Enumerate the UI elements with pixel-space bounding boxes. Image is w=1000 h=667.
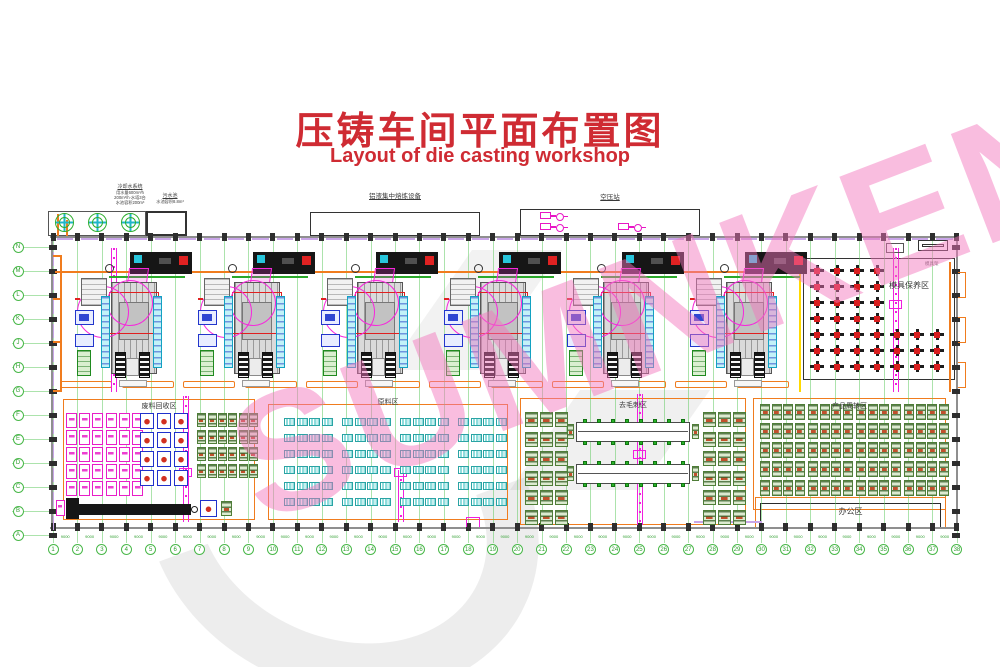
column	[124, 233, 129, 241]
green-bin	[228, 464, 237, 478]
fence-bracket	[958, 362, 966, 388]
axis-dimension: 9000	[175, 534, 199, 540]
pallet-bin	[760, 461, 770, 477]
window-segment	[375, 238, 391, 240]
pallet-bin	[879, 461, 889, 477]
column	[49, 533, 57, 538]
axis-dimension: 9000	[273, 534, 297, 540]
cyan-rack	[496, 498, 507, 506]
column	[881, 523, 886, 531]
cyan-rack	[322, 498, 333, 506]
window-segment	[53, 348, 55, 362]
green-bin	[540, 432, 553, 447]
green-bin	[718, 432, 731, 447]
pallet-bin	[927, 480, 937, 496]
axis-left-circle: N	[13, 242, 24, 253]
axis-left-circle: A	[13, 530, 24, 541]
pallet-bin	[831, 461, 841, 477]
green-bin	[555, 490, 568, 505]
workstation-dot	[597, 483, 601, 487]
axis-dimension: 9000	[444, 534, 468, 540]
axis-dimension: 9000	[200, 534, 224, 540]
pallet-bin	[831, 442, 841, 458]
mold-stand	[910, 329, 924, 340]
mold-stand	[810, 345, 824, 356]
blue-bin	[140, 413, 154, 429]
green-bin	[525, 471, 538, 486]
axis-bottom-circle: 12	[316, 544, 327, 555]
axis-dimension: 9000	[835, 534, 859, 540]
machine-robot-reach-circle	[476, 280, 522, 326]
pallet-bin	[795, 480, 805, 496]
cyan-rack	[496, 418, 507, 426]
magenta-bin	[79, 481, 90, 496]
cyan-rack	[471, 466, 482, 474]
window-segment	[350, 238, 366, 240]
deburr-table	[576, 422, 690, 442]
axis-bottom-circle: 13	[341, 544, 352, 555]
column	[295, 233, 300, 241]
cyan-rack	[380, 498, 391, 506]
cyan-rack	[400, 498, 411, 506]
column	[490, 523, 495, 531]
machine-conveyor	[522, 296, 531, 368]
workstation-dot	[653, 419, 657, 423]
green-bin	[208, 447, 217, 461]
pallet-bin	[879, 423, 889, 439]
axis-bottom-circle: 3	[96, 544, 107, 555]
workstation-dot	[611, 483, 615, 487]
green-bin	[249, 464, 258, 478]
cooling-tower-inner	[59, 217, 70, 228]
magenta-bin	[66, 481, 77, 496]
magenta-bin	[66, 447, 77, 462]
cyan-rack	[496, 466, 507, 474]
workstation-dot	[639, 483, 643, 487]
mold-stand	[830, 313, 844, 324]
axis-bottom-circle: 10	[267, 544, 278, 555]
window-segment	[53, 300, 55, 314]
axis-dimension: 9000	[810, 534, 834, 540]
blue-bin	[174, 470, 188, 486]
fence-segment	[675, 381, 727, 388]
cyan-rack	[483, 466, 494, 474]
workstation-dot	[611, 461, 615, 465]
fence-stub	[53, 255, 61, 257]
pallet-bin	[868, 442, 878, 458]
mold-stand	[850, 345, 864, 356]
window-segment	[423, 238, 439, 240]
cyan-rack	[425, 450, 436, 458]
cyan-rack	[367, 466, 378, 474]
pallet-bin	[927, 461, 937, 477]
window-segment	[448, 238, 464, 240]
green-bin	[718, 412, 731, 427]
column	[49, 317, 57, 322]
truck-cab	[66, 498, 79, 519]
magenta-bin	[119, 447, 130, 462]
pallet-bin	[760, 423, 770, 439]
axis-dimension: 9000	[371, 534, 395, 540]
window-segment	[619, 238, 635, 240]
cyan-rack	[483, 418, 494, 426]
window-segment	[53, 468, 55, 482]
workstation-dot	[583, 483, 587, 487]
pallet-bin	[856, 423, 866, 439]
axis-dimension: 9000	[664, 534, 688, 540]
green-bin	[718, 510, 731, 525]
pallet-bin	[795, 461, 805, 477]
column	[51, 233, 56, 241]
column	[588, 233, 593, 241]
cyan-rack	[400, 450, 411, 458]
pallet-bin	[868, 461, 878, 477]
axis-dimension: 9000	[248, 534, 272, 540]
cyan-rack	[355, 450, 366, 458]
magenta-bin	[92, 464, 103, 479]
green-bin	[249, 447, 258, 461]
axis-dimension: 9000	[151, 534, 175, 540]
pallet-bin	[868, 480, 878, 496]
cyan-rack	[413, 434, 424, 442]
window-segment	[399, 238, 415, 240]
machine-ladder-rack	[385, 352, 396, 378]
mold-stand	[870, 361, 884, 372]
machine-furnace-chip	[671, 256, 680, 265]
pallet-bin	[916, 480, 926, 496]
green-bin	[218, 413, 227, 427]
machine-cooler-unit	[444, 334, 463, 347]
machine-conveyor	[768, 296, 777, 368]
machine-conveyor	[153, 296, 162, 368]
axis-bottom-circle: 7	[194, 544, 205, 555]
machine-cooler-core	[571, 314, 581, 321]
fence-bracket	[958, 317, 966, 343]
blue-bin	[200, 500, 217, 517]
green-bin	[221, 501, 232, 516]
cyan-rack	[355, 498, 366, 506]
pallet-bin	[856, 480, 866, 496]
mold-area-label: 模具保养区	[889, 280, 929, 291]
green-bin	[525, 510, 538, 525]
window-segment	[863, 238, 879, 240]
green-bin	[555, 451, 568, 466]
sewage-pool-line: 水池容积8.8m³	[147, 199, 193, 204]
machine-green-rack	[692, 350, 706, 376]
axis-bottom-circle: 33	[829, 544, 840, 555]
axis-dimension: 9000	[908, 534, 932, 540]
window-segment	[888, 238, 904, 240]
deburr-table-line	[578, 431, 688, 432]
workstation-dot	[653, 461, 657, 465]
machine-conveyor	[470, 296, 479, 368]
mold-stand	[810, 313, 824, 324]
air-pump	[618, 223, 629, 230]
machine-furnace-chip	[626, 255, 634, 263]
magenta-bin	[56, 500, 65, 516]
workstation-dot	[611, 441, 615, 445]
window-segment	[252, 238, 268, 240]
window-segment	[497, 238, 513, 240]
pallet-bin	[843, 423, 853, 439]
machine-furnace-slit	[528, 258, 540, 264]
window-segment	[814, 238, 830, 240]
machine-vent-circle	[351, 264, 360, 273]
axis-bottom-circle: 16	[414, 544, 425, 555]
pallet-bin	[795, 442, 805, 458]
pallet-bin	[820, 480, 830, 496]
machine-ladder-rack	[238, 352, 249, 378]
machine-green-rack	[77, 350, 91, 376]
machine-furnace-chip	[548, 256, 557, 265]
pallet-bin	[939, 461, 949, 477]
blue-bin	[140, 451, 154, 467]
machine-tray	[365, 380, 393, 387]
column	[564, 233, 569, 241]
column	[368, 523, 373, 531]
workstation-dot	[667, 461, 671, 465]
axis-dimension: 9000	[468, 534, 492, 540]
machine-ladder-rack	[508, 352, 519, 378]
mold-stand	[890, 329, 904, 340]
green-bin	[239, 447, 248, 461]
pallet-bin	[843, 442, 853, 458]
magenta-bin	[106, 447, 117, 462]
fence-stub	[53, 341, 61, 343]
machine-green-rack	[200, 350, 214, 376]
axis-bottom-circle: 25	[634, 544, 645, 555]
green-bin	[718, 451, 731, 466]
axis-dimension: 9000	[419, 534, 443, 540]
green-bin	[703, 490, 716, 505]
column	[75, 523, 80, 531]
column	[197, 523, 202, 531]
machine-furnace-chip	[302, 256, 311, 265]
crane-hoist	[633, 450, 646, 459]
workstation-dot	[583, 419, 587, 423]
window-segment	[53, 372, 55, 386]
blue-bin	[140, 432, 154, 448]
column	[832, 523, 837, 531]
pallet-bin	[808, 442, 818, 458]
cyan-rack	[297, 418, 308, 426]
green-bin	[540, 510, 553, 525]
pallet-bin	[772, 480, 782, 496]
workstation-dot	[625, 419, 629, 423]
green-bin	[239, 430, 248, 444]
pallet-bin	[843, 480, 853, 496]
magenta-bin	[106, 481, 117, 496]
column	[417, 233, 422, 241]
mold-stand	[850, 265, 864, 276]
window-segment	[668, 238, 684, 240]
column	[417, 523, 422, 531]
cyan-rack	[380, 418, 391, 426]
cyan-rack	[425, 466, 436, 474]
cyan-rack	[342, 466, 353, 474]
machine-conveyor	[716, 296, 725, 368]
raw-area-label: 原料区	[268, 397, 508, 407]
cyan-rack	[309, 498, 320, 506]
magenta-bin	[119, 430, 130, 445]
machine-furnace-chip	[503, 255, 511, 263]
cyan-rack	[438, 418, 449, 426]
axis-bottom-circle: 24	[609, 544, 620, 555]
machine-furnace-chip	[794, 256, 803, 265]
axis-left-circle: L	[13, 290, 24, 301]
machine-furnace-chip	[749, 255, 757, 263]
scrap-area-label: 废料回收区	[63, 401, 255, 411]
green-bin	[239, 464, 248, 478]
pallet-bin	[808, 423, 818, 439]
pallet-bin	[927, 423, 937, 439]
green-bin	[525, 432, 538, 447]
deburr-area-label: 去毛刺区	[520, 400, 746, 410]
pallet-bin	[939, 442, 949, 458]
pallet-bin	[820, 423, 830, 439]
workstation-dot	[597, 419, 601, 423]
column	[515, 233, 520, 241]
cyan-rack	[342, 434, 353, 442]
column	[954, 233, 959, 241]
gridline-vertical	[688, 237, 689, 543]
green-bin	[540, 490, 553, 505]
pallet-bin	[820, 461, 830, 477]
window-segment	[472, 238, 488, 240]
column	[539, 233, 544, 241]
machine-robot-reach-circle	[722, 280, 768, 326]
workshop-layout-drawing: 压铸车间平面布置图 Layout of die casting workshop…	[0, 0, 1000, 667]
column	[832, 233, 837, 241]
axis-bottom-circle: 27	[683, 544, 694, 555]
axis-dimension: 9000	[322, 534, 346, 540]
pallet-bin	[783, 480, 793, 496]
pallet-bin	[939, 423, 949, 439]
air-pump-pipe	[564, 227, 568, 229]
air-pump	[540, 223, 551, 230]
column	[393, 233, 398, 241]
pallet-bin	[904, 480, 914, 496]
machine-robot-reach-circle	[107, 280, 153, 326]
axis-dimension: 9000	[395, 534, 419, 540]
machine-dim-mark	[567, 298, 572, 300]
cyan-rack	[400, 466, 411, 474]
pallet-bin	[891, 442, 901, 458]
column	[173, 523, 178, 531]
axis-left-circle: J	[13, 338, 24, 349]
column	[344, 233, 349, 241]
fence-segment	[552, 381, 604, 388]
axis-bottom-circle: 38	[951, 544, 962, 555]
mold-stand	[890, 345, 904, 356]
magenta-bin	[79, 464, 90, 479]
axis-bottom-circle: 35	[878, 544, 889, 555]
pallet-bin	[904, 461, 914, 477]
green-bin	[733, 412, 746, 427]
fence-stub	[53, 390, 61, 392]
magenta-bin	[119, 481, 130, 496]
mold-stand	[930, 361, 944, 372]
machine-ladder-rack	[484, 352, 495, 378]
column	[686, 233, 691, 241]
axis-bottom-circle: 28	[707, 544, 718, 555]
pallet-bin	[831, 480, 841, 496]
column	[515, 523, 520, 531]
green-bin	[239, 413, 248, 427]
cyan-rack	[471, 418, 482, 426]
machine-vent-circle	[105, 264, 114, 273]
mold-stand	[910, 361, 924, 372]
machine-green-rack	[323, 350, 337, 376]
mold-stand	[830, 281, 844, 292]
column	[952, 245, 960, 250]
window-segment	[741, 238, 757, 240]
workstation-dot	[667, 483, 671, 487]
pallet-bin	[831, 423, 841, 439]
column	[952, 461, 960, 466]
magenta-bin	[92, 413, 103, 428]
mold-stand	[910, 345, 924, 356]
column	[173, 233, 178, 241]
column	[952, 509, 960, 514]
column	[270, 233, 275, 241]
gridline-vertical	[200, 237, 201, 543]
axis-bottom-circle: 37	[927, 544, 938, 555]
cyan-rack	[458, 434, 469, 442]
workstation-dot	[653, 441, 657, 445]
green-bin	[525, 490, 538, 505]
green-bin	[197, 413, 206, 427]
mold-stand	[870, 265, 884, 276]
mold-stand	[850, 313, 864, 324]
workstation-dot	[653, 483, 657, 487]
cyan-rack	[425, 498, 436, 506]
fence-segment	[306, 381, 358, 388]
column	[808, 233, 813, 241]
pallet-bin	[808, 461, 818, 477]
mold-stand	[870, 281, 884, 292]
pallet-bin	[868, 423, 878, 439]
fence-segment	[429, 381, 481, 388]
window-segment	[228, 238, 244, 240]
cyan-rack	[309, 434, 320, 442]
green-bin	[218, 464, 227, 478]
cyan-rack	[284, 466, 295, 474]
magenta-bin	[106, 430, 117, 445]
workstation-dot	[681, 441, 685, 445]
cyan-rack	[413, 498, 424, 506]
window-segment	[790, 238, 806, 240]
machine-robot-reach-circle	[353, 280, 399, 326]
column	[441, 523, 446, 531]
pallet-bin	[843, 461, 853, 477]
machine-conveyor	[593, 296, 602, 368]
green-bin	[567, 466, 574, 481]
fence-stub	[53, 298, 61, 300]
axis-left-circle: D	[13, 458, 24, 469]
machine-furnace-chip	[257, 255, 265, 263]
column	[75, 233, 80, 241]
door-opening	[466, 517, 480, 527]
machine-dim-mark	[690, 298, 695, 300]
machine-dim-mark	[321, 298, 326, 300]
pallet-bin	[904, 442, 914, 458]
axis-dimension: 9000	[859, 534, 883, 540]
green-bin	[249, 413, 258, 427]
axis-dimension: 9000	[53, 534, 77, 540]
machine-ladder-rack	[361, 352, 372, 378]
pallet-bin	[820, 442, 830, 458]
